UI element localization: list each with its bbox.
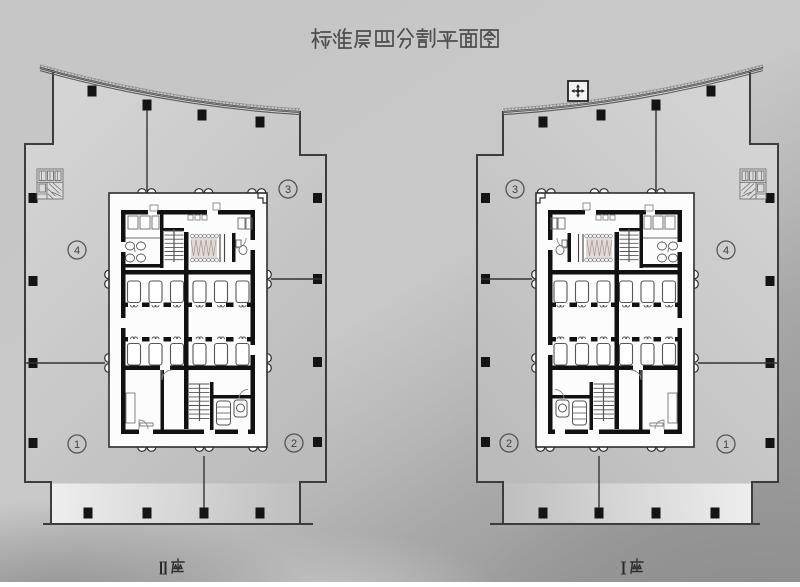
svg-text:2: 2 — [291, 438, 297, 450]
svg-text:1: 1 — [74, 439, 80, 451]
svg-text:4: 4 — [74, 245, 80, 257]
svg-text:4: 4 — [723, 245, 729, 257]
svg-text:2: 2 — [506, 438, 512, 450]
svg-text:3: 3 — [285, 184, 291, 196]
svg-text:3: 3 — [512, 184, 518, 196]
svg-text:1: 1 — [723, 439, 729, 451]
